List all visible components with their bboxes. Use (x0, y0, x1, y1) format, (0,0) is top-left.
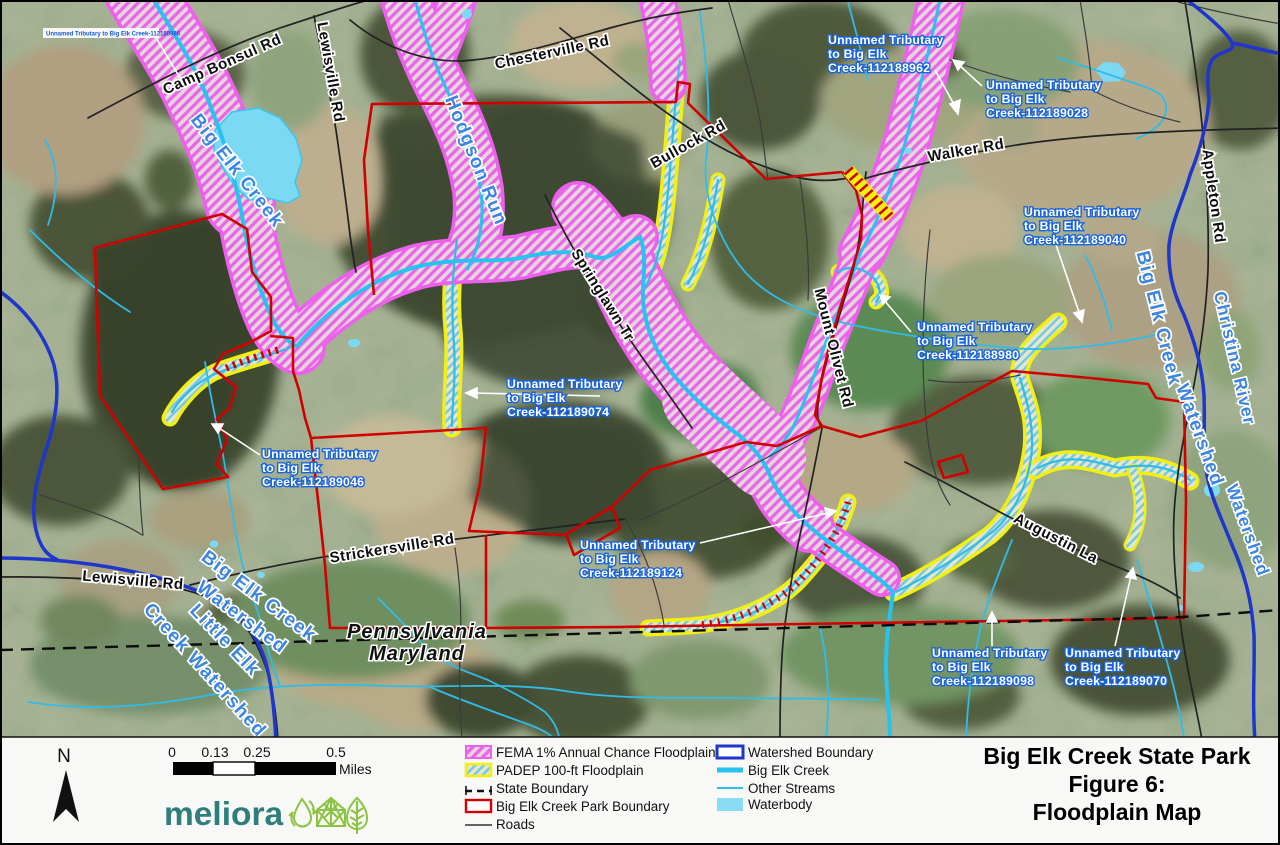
svg-text:Floodplain Map: Floodplain Map (1033, 799, 1202, 825)
svg-text:to Big Elk: to Big Elk (932, 660, 991, 674)
svg-text:Big Elk Creek Park Boundary: Big Elk Creek Park Boundary (496, 799, 670, 814)
svg-text:Watershed Boundary: Watershed Boundary (748, 745, 874, 760)
svg-text:Unnamed Tributary: Unnamed Tributary (507, 377, 622, 391)
svg-text:N: N (57, 746, 71, 767)
svg-text:Creek-112189046: Creek-112189046 (262, 475, 364, 489)
svg-text:PADEP 100-ft Floodplain: PADEP 100-ft Floodplain (496, 763, 644, 778)
svg-text:Creek-112189124: Creek-112189124 (580, 566, 682, 580)
svg-text:Unnamed Tributary to Big Elk C: Unnamed Tributary to Big Elk Creek-11218… (46, 32, 181, 38)
svg-text:to Big Elk: to Big Elk (1065, 660, 1124, 674)
svg-text:Unnamed Tributary: Unnamed Tributary (986, 78, 1101, 92)
svg-text:0.5: 0.5 (326, 744, 346, 760)
svg-text:0.25: 0.25 (243, 744, 270, 760)
svg-text:Creek-112188980: Creek-112188980 (917, 348, 1019, 362)
svg-text:Waterbody: Waterbody (748, 797, 813, 812)
svg-text:to Big Elk: to Big Elk (986, 92, 1045, 106)
svg-text:Unnamed Tributary: Unnamed Tributary (917, 320, 1032, 334)
svg-text:Roads: Roads (496, 817, 535, 832)
svg-text:Maryland: Maryland (369, 643, 465, 665)
svg-text:Unnamed Tributary: Unnamed Tributary (580, 538, 695, 552)
svg-text:Unnamed Tributary: Unnamed Tributary (1024, 205, 1139, 219)
svg-text:Creek-112189098: Creek-112189098 (932, 674, 1034, 688)
svg-text:Figure 6:: Figure 6: (1068, 771, 1165, 797)
svg-text:FEMA 1% Annual Chance Floodpla: FEMA 1% Annual Chance Floodplain (496, 745, 716, 760)
svg-text:Creek-112189040: Creek-112189040 (1024, 233, 1126, 247)
svg-text:Creek-112189074: Creek-112189074 (507, 405, 609, 419)
svg-text:Big Elk Creek: Big Elk Creek (748, 763, 829, 778)
svg-text:State Boundary: State Boundary (496, 781, 589, 796)
svg-text:to Big Elk: to Big Elk (917, 334, 976, 348)
svg-text:Pennsylvania: Pennsylvania (347, 621, 487, 643)
svg-text:Creek-112189028: Creek-112189028 (986, 106, 1088, 120)
svg-text:0: 0 (168, 744, 176, 760)
svg-text:Miles: Miles (339, 761, 372, 777)
svg-text:to Big Elk: to Big Elk (828, 47, 887, 61)
svg-text:to Big Elk: to Big Elk (262, 461, 321, 475)
svg-text:Unnamed Tributary: Unnamed Tributary (262, 447, 377, 461)
svg-text:Big Elk Creek State Park: Big Elk Creek State Park (983, 743, 1250, 769)
svg-text:meliora: meliora (164, 796, 284, 833)
svg-text:to Big Elk: to Big Elk (1024, 219, 1083, 233)
svg-text:Unnamed Tributary: Unnamed Tributary (1065, 646, 1180, 660)
svg-text:Unnamed Tributary: Unnamed Tributary (932, 646, 1047, 660)
svg-text:0.13: 0.13 (201, 744, 228, 760)
svg-text:Unnamed Tributary: Unnamed Tributary (828, 33, 943, 47)
svg-text:to Big Elk: to Big Elk (580, 552, 639, 566)
svg-text:Other Streams: Other Streams (748, 781, 835, 796)
svg-text:to Big Elk: to Big Elk (507, 391, 566, 405)
svg-text:Creek-112189070: Creek-112189070 (1065, 674, 1167, 688)
svg-text:Creek-112188962: Creek-112188962 (828, 61, 930, 75)
